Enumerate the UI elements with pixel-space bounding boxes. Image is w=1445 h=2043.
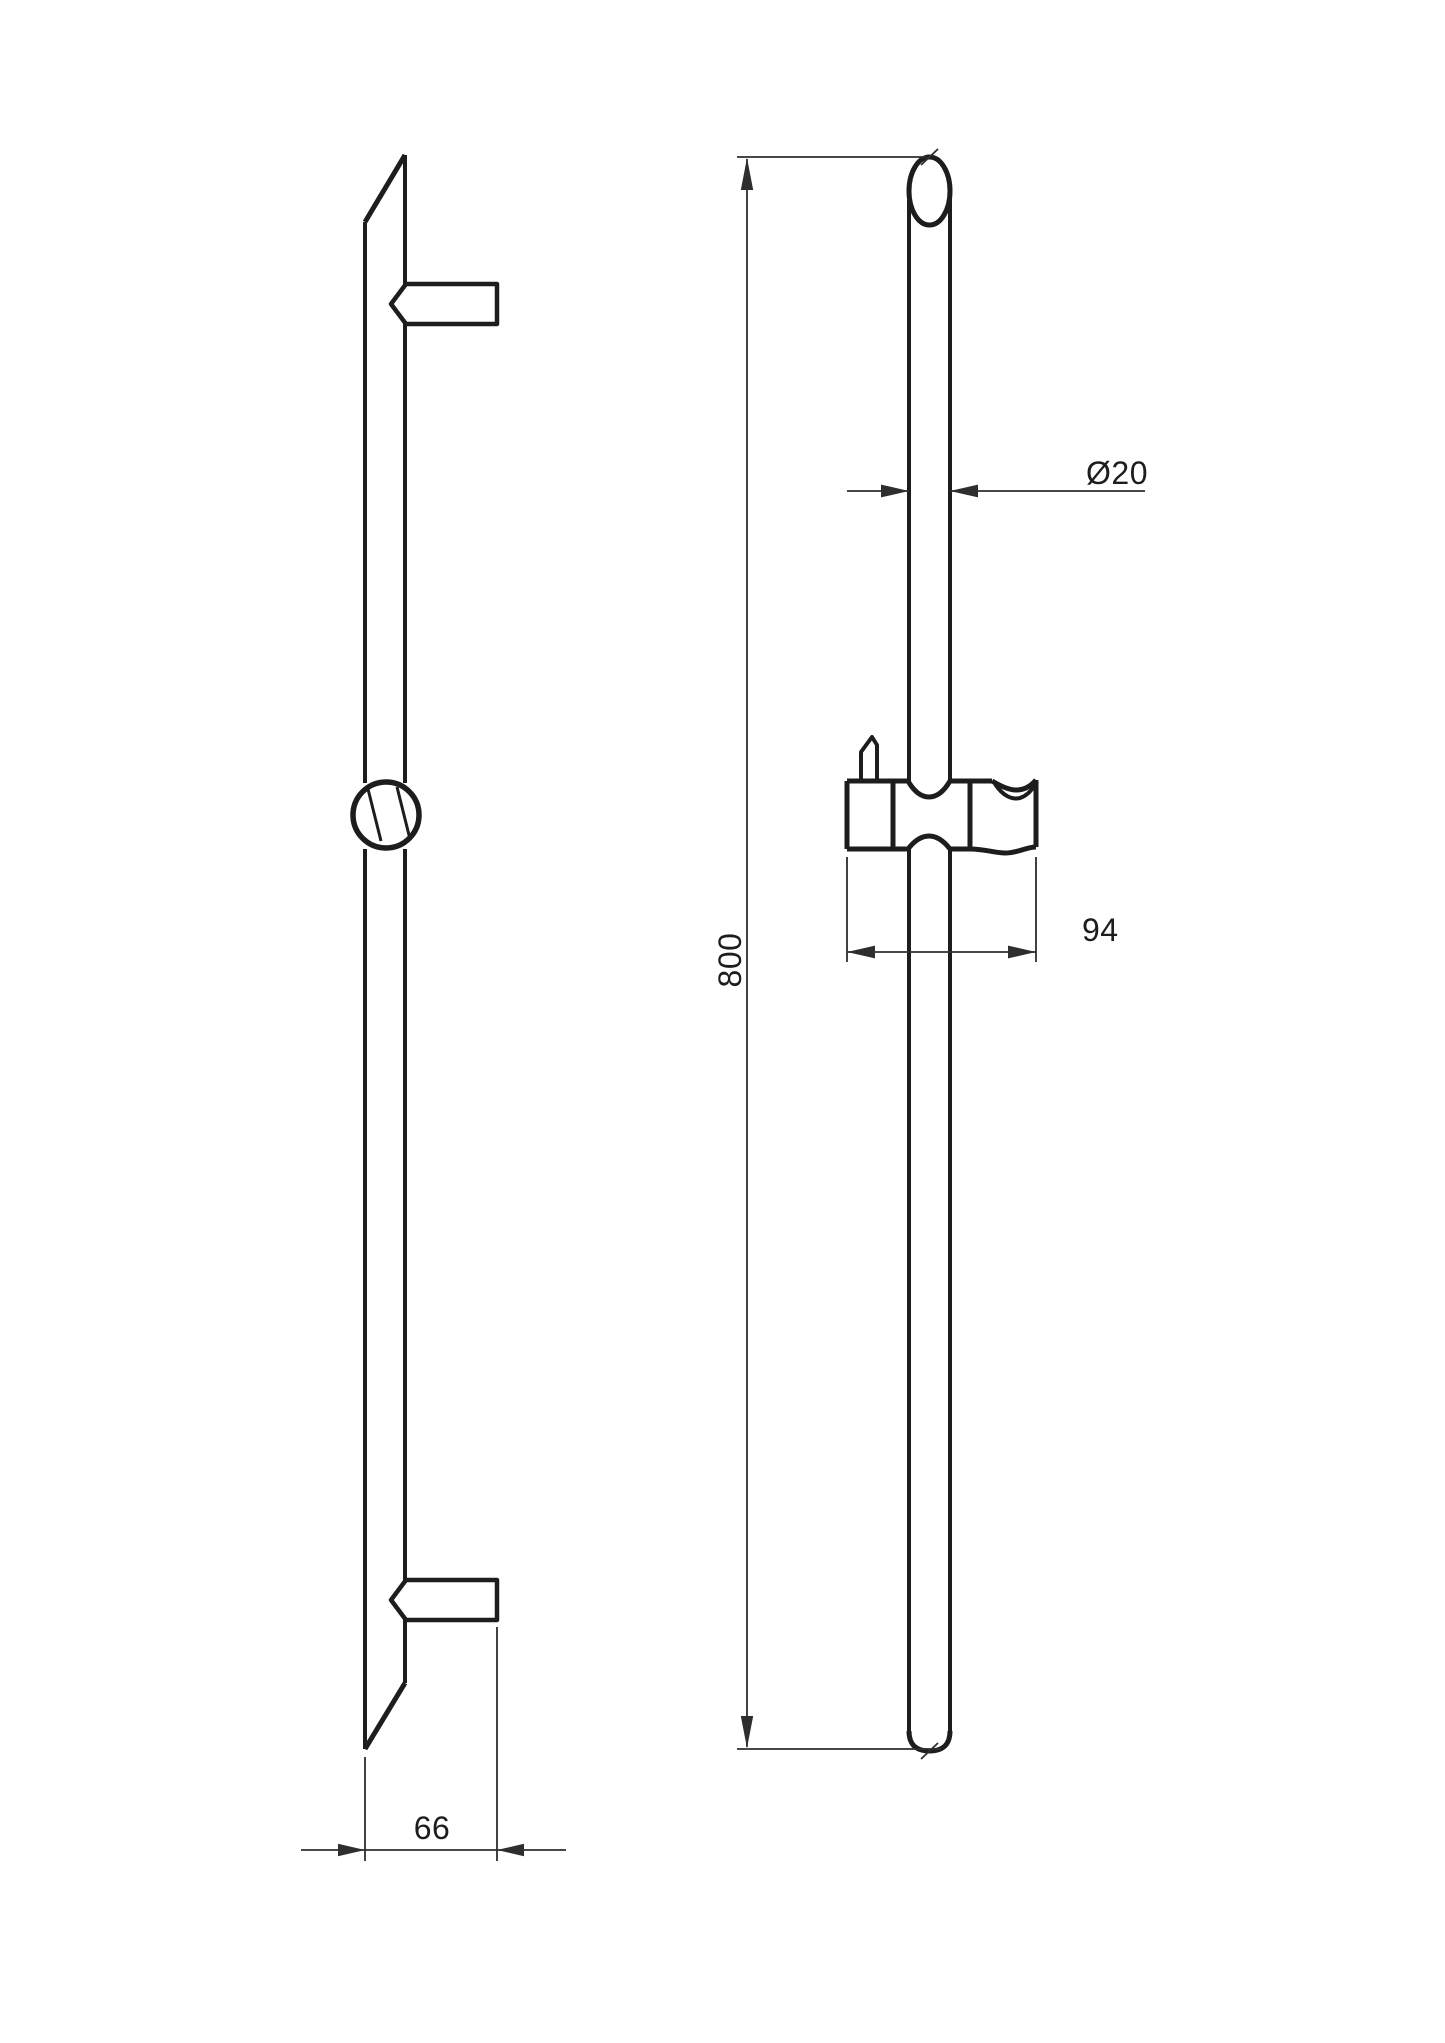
arrow-66-right bbox=[338, 1844, 365, 1856]
wall-plate-bottom-slant bbox=[365, 1683, 405, 1749]
arrow-o20-right bbox=[881, 485, 909, 498]
holder-bottom-edge bbox=[847, 836, 1036, 853]
rail-bottom-cap bbox=[909, 1731, 950, 1751]
dimension-labels: 800 Ø20 94 66 bbox=[414, 455, 1148, 1846]
dim-label-66: 66 bbox=[414, 1810, 451, 1846]
technical-drawing-canvas: 800 Ø20 94 66 bbox=[0, 0, 1445, 2043]
arrow-o20-left bbox=[950, 485, 978, 498]
dim-label-800: 800 bbox=[712, 933, 748, 988]
top-mount-arm bbox=[391, 284, 497, 324]
drawing-sheet: 800 Ø20 94 66 bbox=[0, 0, 1445, 2043]
front-view bbox=[847, 157, 1036, 1751]
rail-top-cap bbox=[909, 157, 950, 225]
holder-hook-tab bbox=[861, 737, 877, 781]
arrow-800-up bbox=[741, 158, 753, 190]
bottom-mount-arm bbox=[391, 1580, 497, 1620]
dim-holder-width bbox=[847, 857, 1036, 962]
arrow-800-down bbox=[741, 1716, 753, 1748]
holder-body bbox=[847, 780, 1036, 853]
wall-plate-top-slant bbox=[365, 155, 405, 222]
side-view bbox=[353, 155, 497, 1749]
arrow-66-left bbox=[497, 1844, 524, 1856]
dim-label-diameter: Ø20 bbox=[1086, 455, 1148, 491]
arrow-94-left bbox=[847, 946, 875, 959]
dim-label-94: 94 bbox=[1082, 912, 1119, 948]
arrow-94-right bbox=[1008, 946, 1036, 959]
